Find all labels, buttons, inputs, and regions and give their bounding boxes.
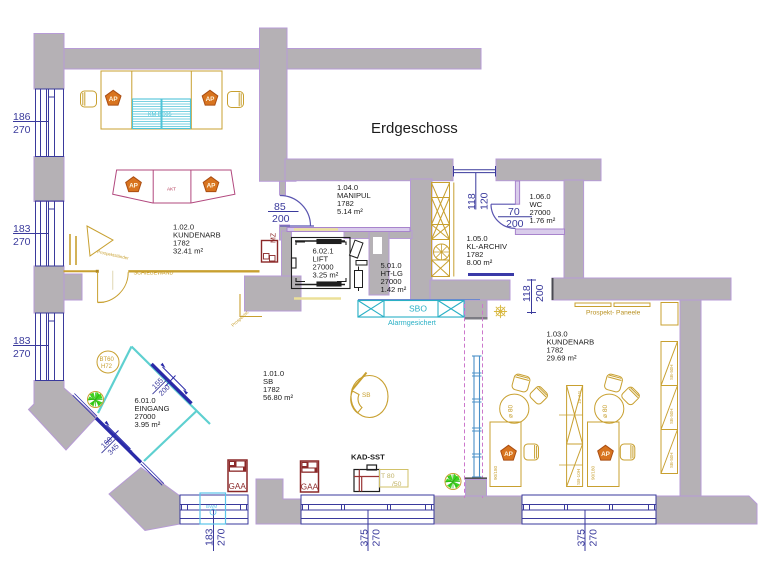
svg-text:270: 270 bbox=[587, 529, 599, 547]
svg-text:118: 118 bbox=[521, 285, 533, 302]
svg-text:ø 80: ø 80 bbox=[507, 404, 514, 418]
svg-text:375: 375 bbox=[575, 529, 587, 547]
svg-text:270: 270 bbox=[13, 236, 31, 248]
svg-text:90/180: 90/180 bbox=[591, 466, 596, 480]
svg-text:BT60: BT60 bbox=[100, 357, 115, 363]
svg-text:3.25 m²: 3.25 m² bbox=[313, 271, 339, 280]
svg-text:MZ: MZ bbox=[271, 232, 278, 243]
svg-text:200: 200 bbox=[272, 213, 290, 225]
svg-text:186: 186 bbox=[13, 111, 31, 123]
svg-text:56.80 m²: 56.80 m² bbox=[263, 393, 293, 402]
svg-text:SB-50H: SB-50H bbox=[669, 365, 674, 380]
svg-text:H72: H72 bbox=[101, 364, 113, 370]
svg-text:32.41 m²: 32.41 m² bbox=[173, 247, 203, 256]
svg-text:KAD-SST: KAD-SST bbox=[351, 453, 385, 462]
svg-text:SB: SB bbox=[362, 392, 371, 399]
svg-text:Alarmgesichert: Alarmgesichert bbox=[388, 318, 436, 327]
svg-text:SB-10H: SB-10H bbox=[576, 469, 581, 485]
svg-text:8.00 m²: 8.00 m² bbox=[467, 258, 493, 267]
svg-text:SCHIEBEWAND: SCHIEBEWAND bbox=[134, 271, 174, 277]
svg-text:200: 200 bbox=[534, 284, 546, 302]
svg-text:270: 270 bbox=[370, 529, 382, 547]
svg-text:120: 120 bbox=[478, 192, 490, 210]
svg-text:/50: /50 bbox=[392, 481, 402, 488]
svg-text:70: 70 bbox=[508, 206, 520, 218]
svg-text:BWM: BWM bbox=[206, 504, 217, 509]
svg-text:ø 80: ø 80 bbox=[602, 404, 609, 418]
svg-text:183: 183 bbox=[13, 223, 31, 235]
svg-text:SB-50H: SB-50H bbox=[669, 453, 674, 468]
svg-text:GAA: GAA bbox=[301, 483, 319, 492]
svg-text:270: 270 bbox=[13, 124, 31, 136]
svg-text:183: 183 bbox=[204, 528, 216, 546]
svg-text:Prospekt- Paneele: Prospekt- Paneele bbox=[586, 310, 641, 317]
svg-text:1.42 m²: 1.42 m² bbox=[381, 285, 407, 294]
svg-text:375: 375 bbox=[358, 529, 370, 547]
svg-text:5.14 m²: 5.14 m² bbox=[337, 207, 363, 216]
svg-text:AKT: AKT bbox=[167, 187, 176, 192]
svg-text:T 80: T 80 bbox=[381, 473, 395, 480]
svg-text:3.95 m²: 3.95 m² bbox=[135, 420, 161, 429]
svg-text:KM BC05: KM BC05 bbox=[148, 112, 172, 118]
svg-text:SB-50H: SB-50H bbox=[669, 409, 674, 424]
svg-text:270: 270 bbox=[13, 348, 31, 360]
svg-text:Erdgeschoss: Erdgeschoss bbox=[371, 120, 458, 137]
svg-text:183: 183 bbox=[13, 335, 31, 347]
svg-text:270: 270 bbox=[216, 528, 228, 546]
svg-text:90/180: 90/180 bbox=[493, 466, 498, 480]
svg-text:1.76 m²: 1.76 m² bbox=[530, 216, 556, 225]
svg-text:SBO: SBO bbox=[409, 304, 427, 314]
svg-text:29.69 m²: 29.69 m² bbox=[547, 354, 577, 363]
svg-text:19-44L: 19-44L bbox=[577, 389, 582, 404]
svg-text:118: 118 bbox=[466, 193, 478, 210]
svg-text:GAA: GAA bbox=[229, 482, 247, 491]
